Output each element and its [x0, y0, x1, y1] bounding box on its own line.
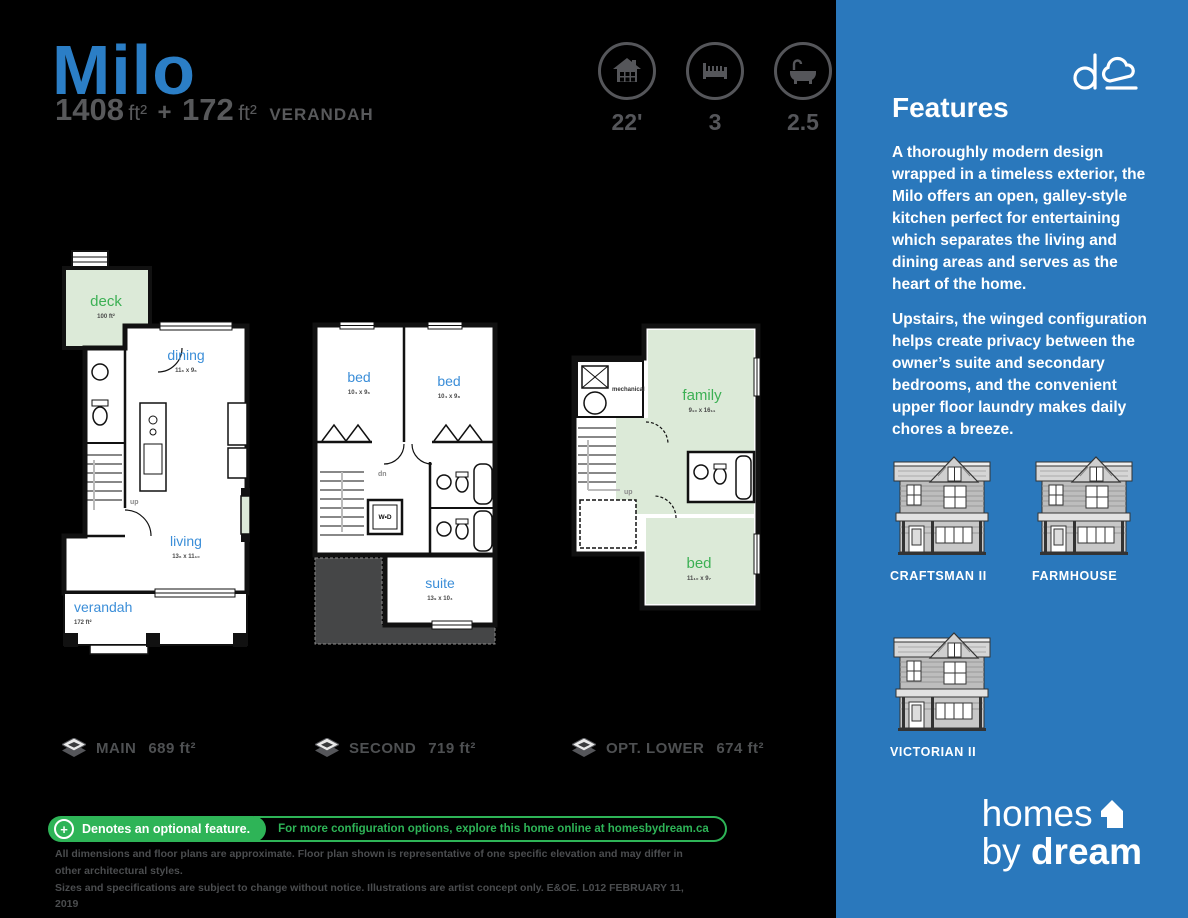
lower-bed-label: bed	[686, 555, 711, 572]
bedrooms-value: 3	[709, 109, 722, 136]
bed1-dims: 10₄ x 9₆	[348, 390, 371, 396]
bed-count-icon	[686, 42, 744, 100]
configuration-note: For more configuration options, explore …	[254, 816, 727, 842]
logo-homes-text: homes	[982, 795, 1093, 833]
verandah-label: verandah	[74, 599, 132, 615]
features-paragraph-2: Upstairs, the winged configuration helps…	[892, 309, 1150, 441]
suite-label: suite	[425, 575, 455, 591]
style-victorian: VICTORIAN II	[890, 628, 994, 759]
style-craftsman: CRAFTSMAN II	[890, 452, 994, 583]
washer-dryer-label: W•D	[378, 514, 391, 521]
homes-by-dream-logo: homes by dream	[982, 795, 1142, 870]
floor-plan-main: deck 100 ft² dining 11₆ x 9₆ living 13₆ …	[60, 248, 250, 660]
family-dims: 9₁₀ x 16₁₁	[689, 408, 716, 414]
bed1-label: bed	[347, 369, 370, 385]
disclaimer-line2: Sizes and specifications are subject to …	[55, 880, 705, 914]
floor-plan-lower: family 9₁₀ x 16₁₁ bed 11₁₀ x 9₇ mechanic…	[568, 322, 764, 614]
plus-icon: +	[54, 819, 74, 839]
dining-label: dining	[167, 347, 204, 363]
style-victorian-label: VICTORIAN II	[890, 745, 994, 759]
features-paragraph-1: A thoroughly modern design wrapped in a …	[892, 142, 1150, 296]
bed2-dims: 10₄ x 9₈	[438, 394, 461, 400]
main-floor-icon	[62, 738, 86, 758]
lower-up-label: up	[624, 489, 633, 496]
mechanical-label: mechanical	[612, 387, 645, 393]
suite-dims: 13₉ x 10₄	[427, 596, 453, 602]
optional-window	[241, 496, 250, 534]
verandah-area-unit: ft²	[238, 102, 257, 125]
main-area-unit: ft²	[128, 102, 147, 125]
lower-floor-icon	[572, 738, 596, 758]
plus-sign: +	[152, 99, 178, 126]
area-subtitle: 1408 ft² + 172 ft² VERANDAH	[55, 92, 374, 128]
up-label: up	[130, 499, 139, 506]
dining-dims: 11₆ x 9₆	[175, 368, 197, 374]
style-farmhouse-label: FARMHOUSE	[1032, 569, 1136, 583]
optional-feature-left: + Denotes an optional feature.	[48, 816, 266, 842]
victorian-house-image	[890, 628, 994, 733]
verandah-word: VERANDAH	[269, 105, 373, 124]
lower-bed-dims: 11₁₀ x 9₇	[687, 576, 712, 582]
dn-label: dn	[378, 471, 387, 478]
bath-count-icon	[774, 42, 832, 100]
farmhouse-house-image	[1032, 452, 1136, 557]
optional-feature-text: Denotes an optional feature.	[82, 822, 250, 836]
second-floor-icon	[315, 738, 339, 758]
configuration-note-text: For more configuration options, explore …	[278, 823, 709, 835]
house-width-icon	[598, 42, 656, 100]
living-dims: 13₆ x 11₁₀	[172, 554, 200, 560]
bathrooms-value: 2.5	[787, 109, 819, 136]
stat-lot-width: 22'	[598, 42, 656, 136]
main-area-value: 1408	[55, 92, 124, 127]
lower-floor-area: 674 ft²	[716, 740, 764, 757]
main-floor-area: 689 ft²	[148, 740, 196, 757]
deck-label: deck	[90, 293, 122, 310]
optional-feature-bar: + Denotes an optional feature. For more …	[48, 816, 727, 842]
deck-area-label: 100 ft²	[97, 313, 115, 320]
craftsman-house-image	[890, 452, 994, 557]
logo-house-icon	[1097, 795, 1125, 829]
dream-cloud-icon	[1070, 50, 1144, 92]
living-label: living	[170, 533, 202, 549]
verandah-area-value: 172	[182, 92, 234, 127]
features-title: Features	[892, 92, 1009, 124]
lower-floor-footer: OPT. LOWER 674 ft²	[572, 738, 764, 758]
main-floor-name: MAIN	[96, 740, 136, 757]
bed2-label: bed	[437, 373, 460, 389]
logo-by-text: by	[982, 831, 1021, 872]
disclaimer-line1: All dimensions and floor plans are appro…	[55, 846, 705, 880]
main-floor-footer: MAIN 689 ft²	[62, 738, 196, 758]
second-floor-area: 719 ft²	[428, 740, 476, 757]
lower-floor-name: OPT. LOWER	[606, 740, 704, 757]
stat-bedrooms: 3	[686, 42, 744, 136]
style-row-top: CRAFTSMAN II FARMHOUSE	[890, 452, 1136, 583]
second-floor-name: SECOND	[349, 740, 416, 757]
stats-row: 22' 3 2.5	[598, 42, 832, 136]
logo-dream-text: dream	[1031, 831, 1142, 872]
style-farmhouse: FARMHOUSE	[1032, 452, 1136, 583]
floor-plan-second: bed 10₄ x 9₆ bed 10₄ x 9₈ suite 13₉ x 10…	[312, 322, 498, 652]
stat-bathrooms: 2.5	[774, 42, 832, 136]
features-body: A thoroughly modern design wrapped in a …	[892, 142, 1150, 454]
verandah-area-label: 172 ft²	[74, 619, 92, 626]
family-label: family	[682, 387, 722, 404]
features-sidebar: Features A thoroughly modern design wrap…	[836, 0, 1188, 918]
second-floor-footer: SECOND 719 ft²	[315, 738, 476, 758]
style-craftsman-label: CRAFTSMAN II	[890, 569, 994, 583]
disclaimer: All dimensions and floor plans are appro…	[55, 846, 705, 913]
lot-width-value: 22'	[611, 109, 642, 136]
